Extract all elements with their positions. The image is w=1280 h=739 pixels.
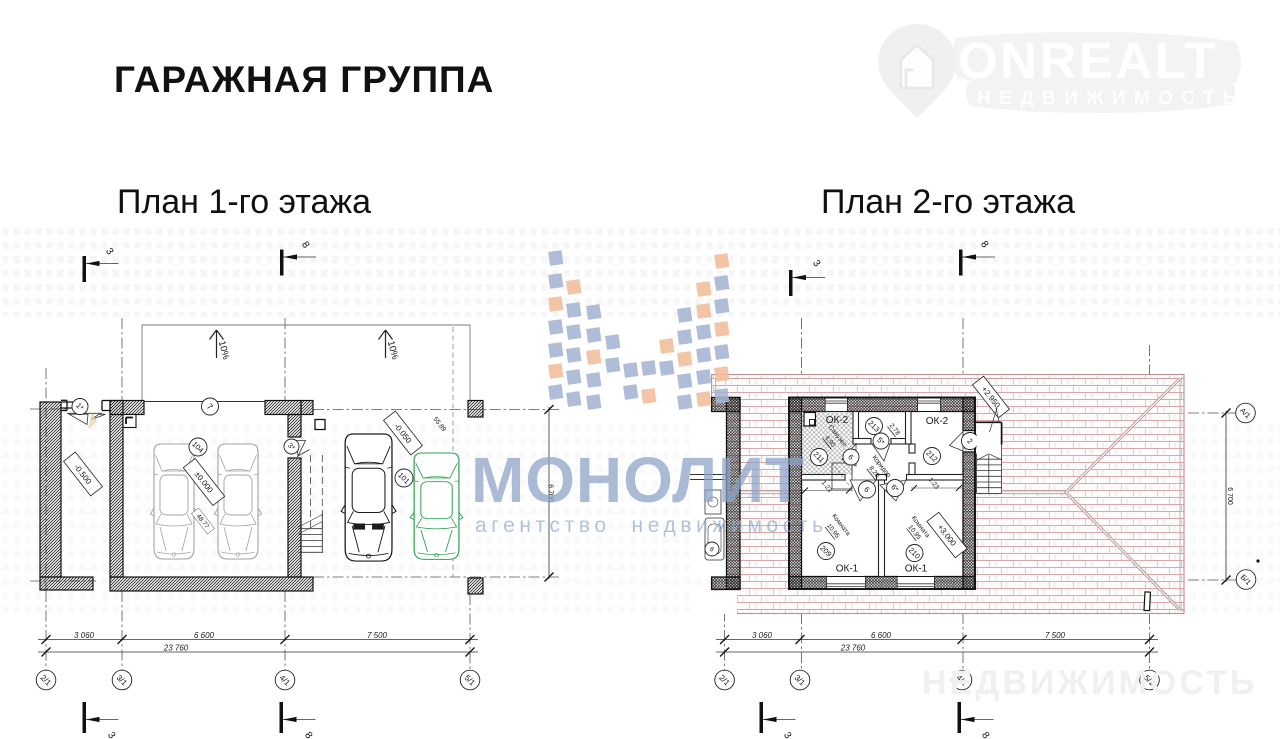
svg-text:ОК-1: ОК-1	[905, 564, 928, 575]
svg-text:ONREALT: ONREALT	[958, 32, 1218, 89]
svg-text:23 760: 23 760	[163, 643, 189, 652]
svg-text:МОНОЛИТ: МОНОЛИТ	[471, 444, 808, 516]
svg-text:ОК-2: ОК-2	[826, 415, 849, 426]
svg-text:7 500: 7 500	[1045, 631, 1066, 640]
svg-text:НЕДВИЖИМОСТЬ: НЕДВИЖИМОСТЬ	[977, 88, 1245, 109]
svg-text:6 600: 6 600	[194, 631, 215, 640]
svg-text:6 700: 6 700	[1226, 487, 1233, 505]
svg-text:НЕДВИЖИМОСТЬ: НЕДВИЖИМОСТЬ	[922, 664, 1257, 702]
svg-text:агентство недвижимость: агентство недвижимость	[475, 514, 828, 537]
svg-text:23 760: 23 760	[840, 643, 866, 652]
svg-text:План 1-го этажа: План 1-го этажа	[117, 183, 371, 221]
svg-text:3 060: 3 060	[74, 631, 95, 640]
svg-text:6 600: 6 600	[871, 631, 892, 640]
svg-text:7 500: 7 500	[367, 631, 388, 640]
svg-text:3 060: 3 060	[752, 631, 773, 640]
svg-text:ОК-2: ОК-2	[926, 416, 949, 427]
svg-text:ОК-1: ОК-1	[836, 564, 859, 575]
svg-text:План 2-го этажа: План 2-го этажа	[821, 183, 1075, 221]
svg-text:ГАРАЖНАЯ ГРУППА: ГАРАЖНАЯ ГРУППА	[114, 59, 494, 100]
